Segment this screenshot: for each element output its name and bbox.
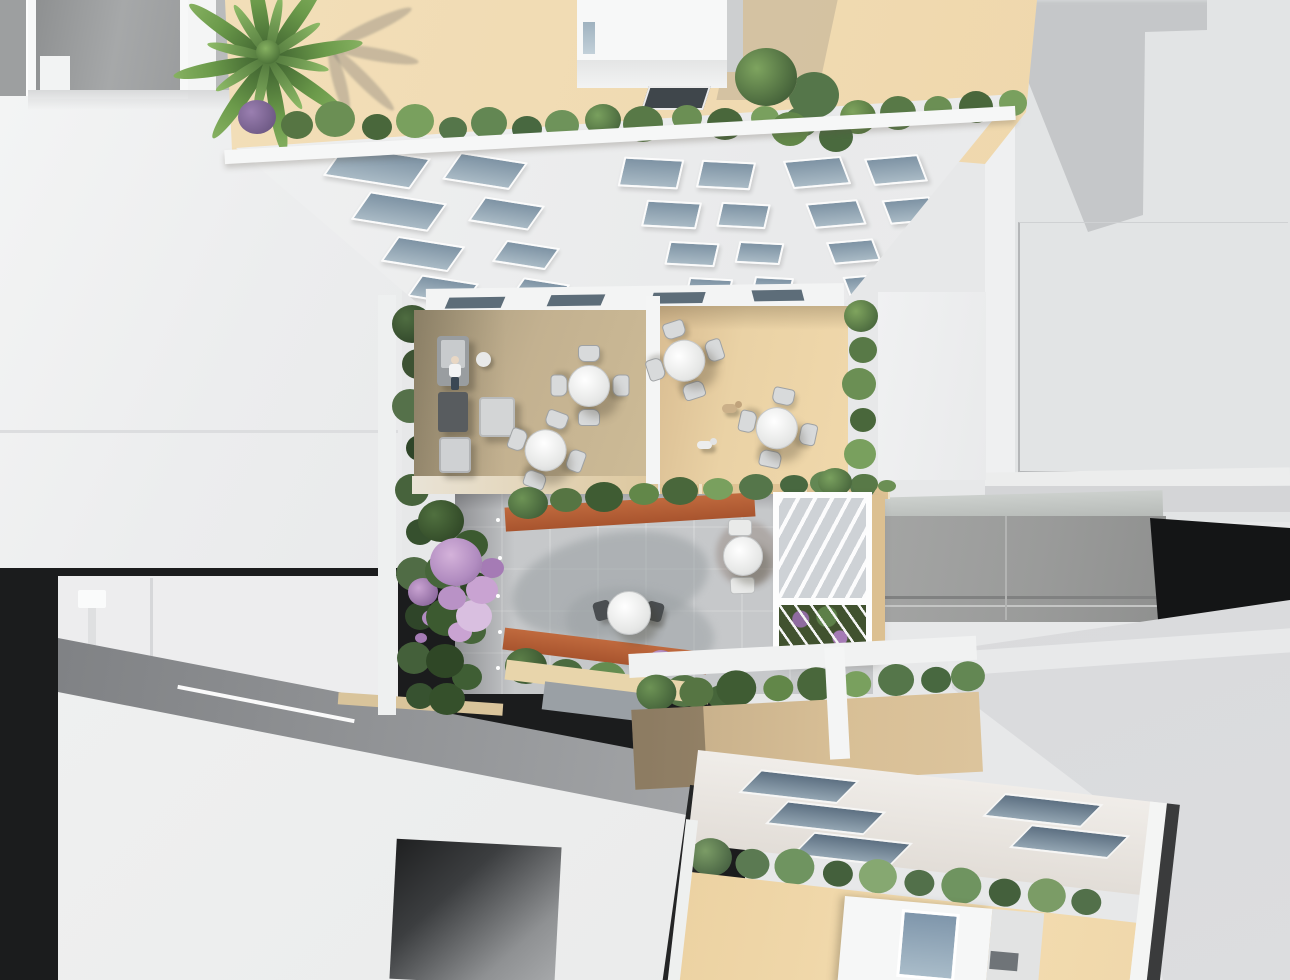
- dining-set: [726, 377, 826, 477]
- chair: [771, 386, 796, 407]
- concrete-plant-room-ledge: [875, 596, 1163, 599]
- slab-lightwell-opening: [389, 839, 561, 980]
- round-table: [752, 403, 802, 453]
- pergola-side-ledge: [872, 495, 885, 657]
- dog-beige: [722, 401, 742, 415]
- dog-head: [710, 438, 717, 445]
- round-table: [568, 365, 610, 407]
- bistro-table: [607, 591, 651, 635]
- east-roof-white-strip: [985, 100, 1015, 520]
- facade-window: [716, 202, 771, 229]
- facade-window: [864, 154, 928, 186]
- top-floor-window: [752, 290, 805, 302]
- chair: [758, 448, 783, 469]
- courtyard-west-wall: [378, 295, 396, 715]
- bistro-set-white-chairs: [710, 515, 780, 599]
- facade-window: [380, 236, 465, 272]
- facade-window: [442, 152, 528, 190]
- south-penthouse-slot: [989, 951, 1018, 971]
- chair: [661, 318, 687, 341]
- garden-bed-foliage: [418, 500, 464, 542]
- person-legs: [451, 377, 459, 390]
- facade-window: [664, 241, 719, 267]
- west-roof-edge-line: [0, 430, 398, 433]
- facade-window: [909, 270, 953, 292]
- dog-head: [735, 401, 742, 408]
- north-penthouse-skylight: [583, 22, 595, 54]
- armchair: [439, 437, 471, 473]
- west-roof-vent-pillar: [78, 590, 106, 608]
- pergola: [773, 492, 872, 658]
- top-left-corner-wall: [0, 0, 29, 96]
- north-penthouse-vent: [641, 86, 711, 110]
- round-table: [519, 423, 573, 477]
- facade-window: [468, 196, 545, 230]
- coffee-table: [438, 392, 468, 432]
- lightwell-step: [40, 56, 70, 90]
- top-floor-window: [547, 294, 606, 306]
- person-torso: [449, 364, 461, 377]
- facade-window: [492, 240, 561, 270]
- facade-window: [783, 156, 852, 189]
- top-floor-window: [445, 297, 506, 309]
- facade-window: [696, 160, 756, 191]
- chair: [578, 345, 600, 362]
- facade-window: [641, 200, 702, 230]
- person-head: [451, 356, 459, 364]
- chair-white: [730, 577, 756, 595]
- facade-window: [735, 241, 785, 265]
- facade-window: [826, 238, 881, 264]
- pergola-divider: [779, 598, 866, 605]
- facade-window: [805, 199, 866, 229]
- courtyard-east-roof-strip: [878, 292, 986, 480]
- facade-window: [351, 191, 448, 231]
- concrete-plant-room-corner: [1005, 516, 1007, 620]
- south-hedge-row: [635, 674, 677, 712]
- north-penthouse-face: [577, 60, 727, 88]
- facade-window: [896, 235, 947, 260]
- dog-white: [697, 438, 717, 451]
- concrete-plant-room-ledge-2: [875, 605, 1163, 607]
- north-penthouse: [577, 0, 727, 62]
- lightwell-south-shade: [28, 90, 238, 110]
- round-table: [658, 334, 711, 387]
- terrace-tree-cluster: [735, 48, 797, 106]
- facade-window: [618, 157, 685, 190]
- pergola-glass-roof: [779, 498, 866, 598]
- south-penthouse-skylight: [896, 909, 960, 980]
- palm-crown: [256, 40, 280, 64]
- chair: [543, 408, 569, 431]
- terrace-hedge-row-west: [238, 100, 276, 134]
- east-roof-parapet-outline: [1018, 222, 1288, 473]
- side-stool: [476, 352, 491, 367]
- courtyard-west-flowers: [408, 578, 438, 606]
- chair-white: [728, 519, 752, 536]
- aerial-render-scene: [0, 0, 1290, 980]
- flowering-bush: [430, 538, 482, 586]
- chair: [613, 375, 630, 397]
- bistro-table: [723, 536, 763, 576]
- person: [448, 356, 462, 390]
- planter-upper-shrubs: [508, 487, 548, 519]
- facade-window: [881, 196, 938, 224]
- chair: [551, 375, 568, 397]
- east-terrace-hedge: [844, 300, 878, 332]
- string-light: [496, 518, 500, 522]
